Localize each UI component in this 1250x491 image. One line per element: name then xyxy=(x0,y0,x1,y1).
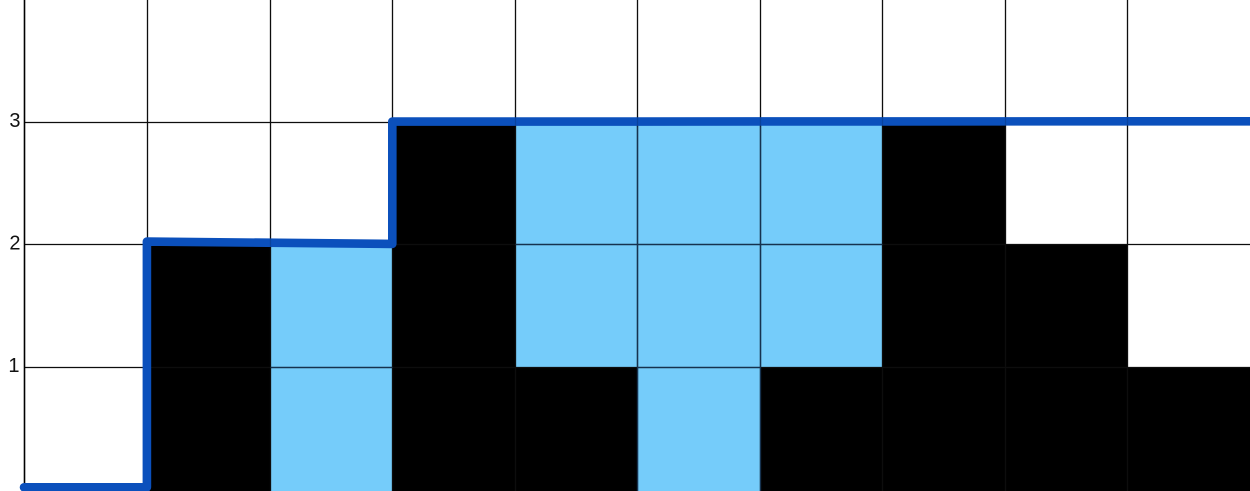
svg-text:3: 3 xyxy=(9,110,20,132)
svg-text:2: 2 xyxy=(9,233,20,255)
svg-text:1: 1 xyxy=(8,355,19,377)
